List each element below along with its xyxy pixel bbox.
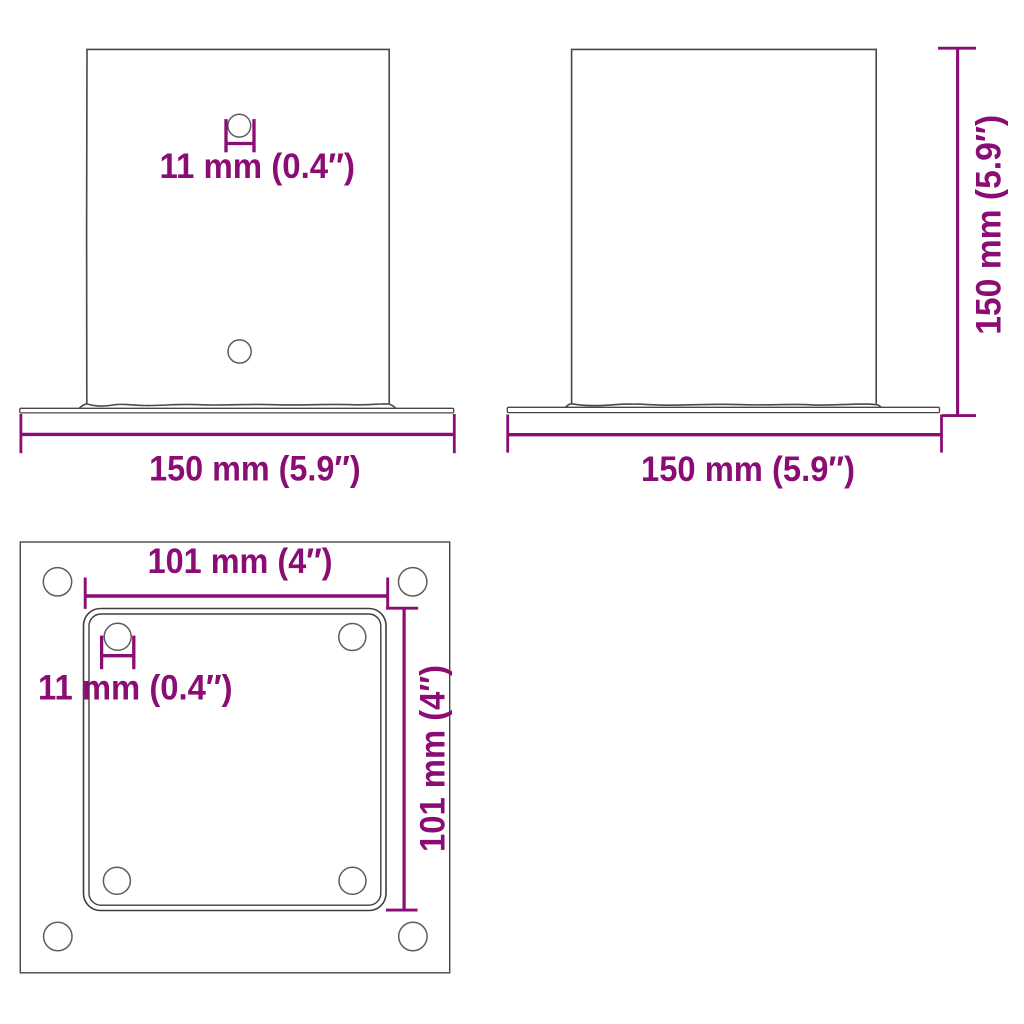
svg-text:11 mm (0.4″): 11 mm (0.4″): [38, 669, 233, 708]
svg-text:101 mm (4″): 101 mm (4″): [148, 542, 333, 581]
svg-text:11 mm (0.4″): 11 mm (0.4″): [159, 147, 355, 186]
svg-text:150 mm (5.9″): 150 mm (5.9″): [969, 115, 1008, 335]
svg-text:101 mm (4″): 101 mm (4″): [413, 665, 452, 852]
svg-text:150 mm (5.9″): 150 mm (5.9″): [641, 450, 855, 489]
svg-text:150 mm (5.9″): 150 mm (5.9″): [149, 450, 361, 489]
